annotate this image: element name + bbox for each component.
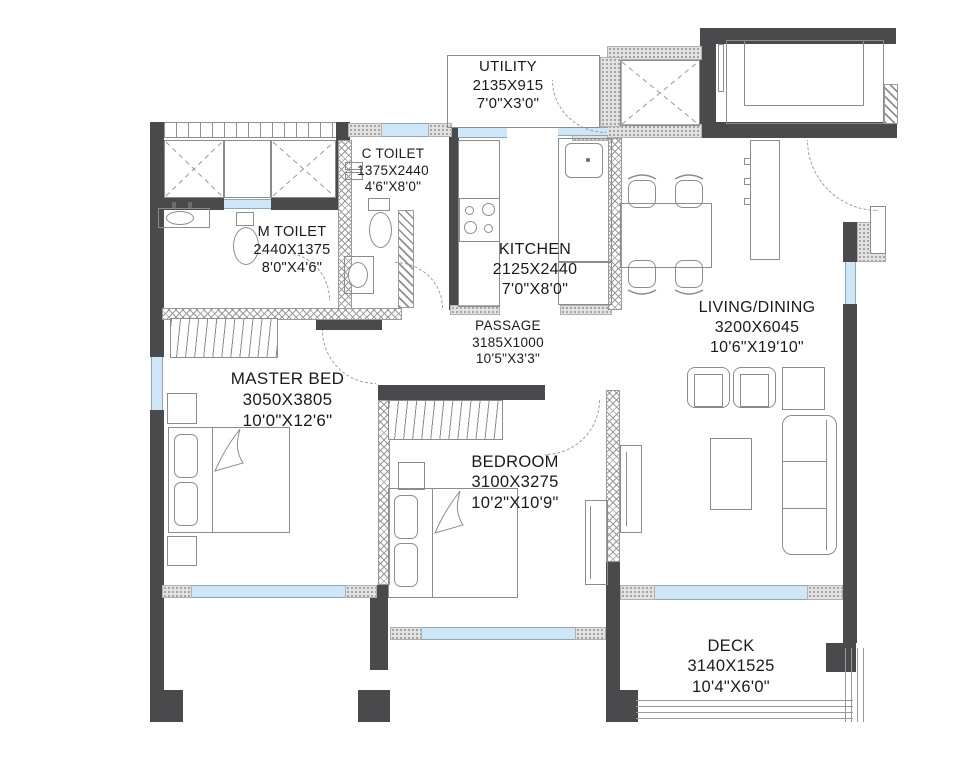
room-dim-mm: 3200X6045 [687,318,827,338]
nightstand [398,462,425,490]
wall-hatch [390,627,422,640]
tv-unit [620,445,642,533]
wall-hatch [884,84,898,124]
sofa-seat-line [783,508,826,509]
crockery-unit [750,140,780,260]
window [422,627,575,640]
room-dim-mm: 3050X3805 [205,389,370,410]
room-dim-mm: 2135X915 [438,77,578,96]
crockery-unit-tab [744,178,751,185]
tv-unit-line [590,506,591,579]
hob-burner [482,203,495,216]
room-label-master-bed: MASTER BED 3050X3805 10'0"X12'6" [205,368,370,431]
crockery-unit-tab [744,158,751,165]
room-label-kitchen: KITCHEN 2125X2440 7'0"X8'0" [480,240,590,299]
floor-plan: UTILITY 2135X915 7'0"X3'0" C TOILET 1375… [0,0,974,780]
window [655,585,807,600]
window [458,127,507,138]
dining-chair [628,260,656,288]
sofa-seat-line [783,461,826,462]
hob-burner [465,206,474,215]
door-swing-arc [395,262,443,308]
door-swing-arc [545,400,600,455]
pillow [394,543,418,587]
deck-railing [845,648,865,722]
wall-hatch [807,585,843,600]
wardrobe [170,318,278,358]
wall-hatch [620,585,655,600]
room-dim-ft: 10'6"X19'10" [687,338,827,358]
wall-segment [150,122,164,357]
door-swing-arc [807,140,878,211]
room-dim-mm: 3185X1000 [453,335,563,352]
wall-segment [378,385,545,400]
tap [172,202,176,208]
window [192,585,345,598]
sofa-back-line [826,420,827,550]
room-name: MASTER BED [205,368,370,389]
dining-chair [628,180,656,208]
room-name: KITCHEN [480,240,590,260]
nightstand [167,536,197,566]
room-name: BEDROOM [455,452,575,472]
room-dim-mm: 1375X2440 [345,163,441,180]
wall-hatch [162,585,192,598]
lift-shaft [620,60,700,126]
hob-burner [484,224,493,233]
window [845,262,856,304]
room-dim-ft: 10'4"X6'0" [660,677,802,697]
wall-segment [150,410,164,690]
entry-niche [870,206,886,254]
room-dim-ft: 8'0"X4'6" [237,260,347,278]
sink-drain [586,158,590,162]
room-dim-ft: 10'5"X3'3" [453,351,563,368]
room-label-passage: PASSAGE 3185X1000 10'5"X3'3" [453,318,563,368]
wall-segment [700,122,897,138]
pillow [174,434,198,478]
room-label-deck: DECK 3140X1525 10'4"X6'0" [660,636,802,697]
wall-segment [843,222,857,262]
sofa [782,415,837,555]
window [151,357,163,410]
wall-segment [843,586,857,643]
room-dim-mm: 3100X3275 [455,472,575,492]
tv-unit [585,500,608,585]
room-label-utility: UTILITY 2135X915 7'0"X3'0" [438,58,578,114]
room-dim-mm: 3140X1525 [660,656,802,676]
coffee-table [710,438,752,510]
wall-segment [606,560,620,690]
wall-hatch [345,585,377,598]
wall-hatch [606,390,620,562]
wall-segment [843,304,857,586]
nightstand [167,393,197,424]
washbasin-bowl [166,211,194,225]
room-dim-mm: 2125X2440 [480,260,590,280]
room-name: UTILITY [438,58,578,77]
room-label-bedroom: BEDROOM 3100X3275 10'2"X10'9" [455,452,575,513]
room-label-c-toilet: C TOILET 1375X2440 4'6"X8'0" [345,146,441,196]
room-dim-ft: 7'0"X3'0" [438,95,578,114]
tap [188,202,192,208]
room-dim-ft: 7'0"X8'0" [480,280,590,300]
room-label-living-dining: LIVING/DINING 3200X6045 10'6"X19'10" [687,298,827,357]
armchair-seat [740,374,769,407]
pillow [394,495,418,539]
room-name: LIVING/DINING [687,298,827,318]
ledge-louver [164,122,336,138]
washbasin-bowl [348,262,368,288]
wardrobe [388,400,503,440]
room-label-m-toilet: M TOILET 2440X1375 8'0"X4'6" [237,224,347,278]
bed-sheet-line [432,488,433,598]
side-table [782,367,825,410]
room-dim-ft: 4'6"X8'0" [345,179,441,196]
pillar [606,690,638,722]
wall-hatch [348,123,382,137]
bed-sheet-line [212,427,213,533]
kitchen-sink [565,143,603,178]
window [224,199,271,209]
counter-edge [560,305,612,315]
kitchen-hob [459,198,500,242]
room-dim-ft: 10'2"X10'9" [455,493,575,513]
armchair-seat [694,374,723,407]
pillow [174,482,198,526]
hob-burner [464,221,477,234]
duct-shaft [164,140,224,198]
dining-chair [675,180,703,208]
tv-unit-line [626,452,627,526]
window [382,123,428,137]
room-name: PASSAGE [453,318,563,335]
room-name: M TOILET [237,224,347,242]
wall-hatch [575,627,606,640]
dining-table [620,203,712,268]
room-dim-mm: 2440X1375 [237,242,347,260]
adjacent-unit-outline [744,40,864,106]
wc-cistern [368,198,390,211]
dining-chair [675,260,703,288]
crockery-unit-tab [744,198,751,205]
pillar [358,690,390,722]
duct-shaft [224,140,271,198]
room-name: DECK [660,636,802,656]
room-dim-ft: 10'0"X12'6" [205,410,370,431]
room-name: C TOILET [345,146,441,163]
adjacent-unit-outline [718,44,724,92]
deck-railing [636,700,853,724]
wc-toilet [369,212,392,248]
duct-shaft [271,140,336,198]
pillar [150,690,183,722]
